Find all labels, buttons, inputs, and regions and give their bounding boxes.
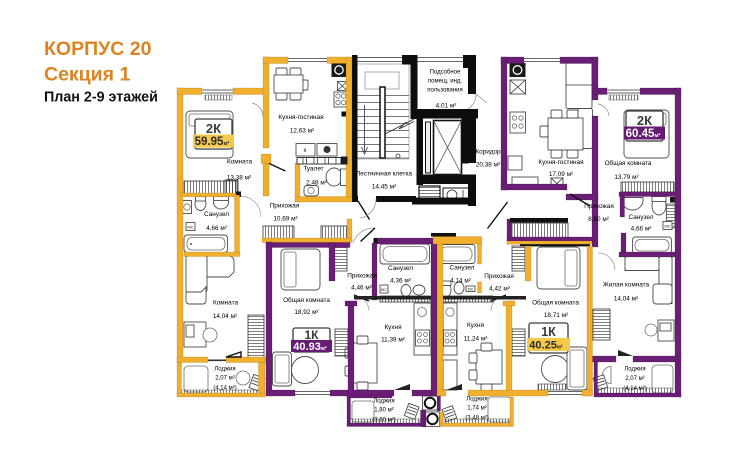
svg-text:Кухня-гостиная: Кухня-гостиная (538, 159, 584, 166)
svg-text:Кухня: Кухня (467, 322, 485, 329)
svg-text:4,01 м²: 4,01 м² (436, 103, 457, 110)
svg-text:Лоджия: Лоджия (214, 367, 235, 373)
svg-text:4,66 м²: 4,66 м² (206, 225, 227, 232)
svg-text:11,39 м²: 11,39 м² (381, 337, 405, 344)
svg-text:Общая комната: Общая комната (605, 159, 652, 167)
svg-text:(3,60 м²): (3,60 м²) (372, 418, 395, 424)
svg-text:Коридор: Коридор (475, 149, 501, 156)
svg-text:2,07 м²: 2,07 м² (215, 376, 234, 382)
svg-text:1,74 м²: 1,74 м² (467, 406, 486, 412)
svg-text:Прихожая: Прихожая (270, 203, 300, 210)
svg-text:18,71 м²: 18,71 м² (544, 312, 568, 319)
svg-text:МС: МС (381, 287, 387, 292)
svg-text:4,42 м²: 4,42 м² (489, 286, 510, 293)
svg-text:10,69 м²: 10,69 м² (273, 216, 297, 223)
svg-text:2К: 2К (206, 121, 221, 136)
svg-text:Общая комната: Общая комната (532, 299, 579, 307)
svg-text:4,36 м²: 4,36 м² (390, 278, 411, 285)
svg-text:4,46 м²: 4,46 м² (351, 285, 372, 292)
svg-text:(4,14 м²): (4,14 м²) (623, 386, 646, 392)
svg-text:Подсобное: Подсобное (430, 70, 462, 76)
svg-text:План 2-9 этажей: План 2-9 этажей (44, 90, 158, 106)
svg-text:18,92 м²: 18,92 м² (294, 309, 318, 316)
svg-text:Общая комната: Общая комната (283, 296, 330, 304)
svg-text:1К: 1К (541, 325, 556, 339)
svg-text:Комната: Комната (213, 300, 238, 307)
svg-text:Прихожая: Прихожая (484, 273, 514, 280)
svg-text:Кухня: Кухня (384, 324, 402, 331)
svg-text:Лоджия: Лоджия (624, 367, 645, 373)
svg-text:4,66 м²: 4,66 м² (631, 226, 652, 233)
svg-text:Санузел: Санузел (629, 214, 654, 221)
svg-text:1,80 м²: 1,80 м² (374, 408, 393, 414)
svg-text:x: x (304, 148, 307, 154)
svg-text:4,14 м²: 4,14 м² (450, 278, 471, 285)
svg-text:(4,14 м²): (4,14 м²) (213, 386, 236, 392)
svg-text:8,80 м²: 8,80 м² (588, 216, 609, 223)
svg-text:Жилая комната: Жилая комната (603, 282, 650, 289)
svg-text:14,04 м²: 14,04 м² (614, 296, 638, 303)
svg-text:2,07 м²: 2,07 м² (625, 376, 644, 382)
svg-text:(3,48 м²): (3,48 м²) (465, 416, 488, 422)
svg-text:2К: 2К (637, 113, 652, 128)
svg-text:12,63 м²: 12,63 м² (290, 128, 314, 135)
svg-text:14,04 м²: 14,04 м² (213, 313, 237, 320)
svg-text:Комната: Комната (227, 159, 252, 166)
svg-text:17,09 м²: 17,09 м² (549, 171, 573, 178)
svg-text:11,24 м²: 11,24 м² (464, 336, 488, 343)
svg-text:Секция 1: Секция 1 (44, 64, 130, 86)
svg-text:Туалет: Туалет (303, 166, 323, 173)
svg-text:пользования: пользования (427, 88, 462, 94)
svg-text:Прихожая: Прихожая (584, 203, 614, 210)
svg-text:МС: МС (664, 224, 670, 229)
svg-text:1К: 1К (305, 328, 320, 342)
svg-text:13,38 м²: 13,38 м² (227, 175, 251, 182)
svg-text:Лоджия: Лоджия (466, 397, 487, 403)
svg-text:13,79 м²: 13,79 м² (614, 174, 638, 181)
svg-text:КОРПУС 20: КОРПУС 20 (44, 38, 152, 60)
svg-text:Лестничная клетка: Лестничная клетка (356, 171, 412, 178)
svg-text:помещ. инд.: помещ. инд. (428, 79, 462, 85)
svg-text:Прихожая: Прихожая (347, 273, 377, 280)
svg-text:20,38 м²: 20,38 м² (476, 162, 500, 169)
svg-text:14,45 м²: 14,45 м² (372, 184, 396, 191)
svg-text:МС: МС (187, 225, 193, 230)
svg-text:Кухня-гостиная: Кухня-гостиная (278, 114, 324, 121)
svg-text:МС: МС (468, 288, 474, 292)
svg-text:2,48 м²: 2,48 м² (306, 180, 327, 187)
svg-text:Санузел: Санузел (204, 211, 229, 218)
svg-text:Санузел: Санузел (450, 265, 475, 272)
svg-text:Санузел: Санузел (388, 265, 413, 272)
svg-text:Лоджия: Лоджия (373, 399, 394, 405)
